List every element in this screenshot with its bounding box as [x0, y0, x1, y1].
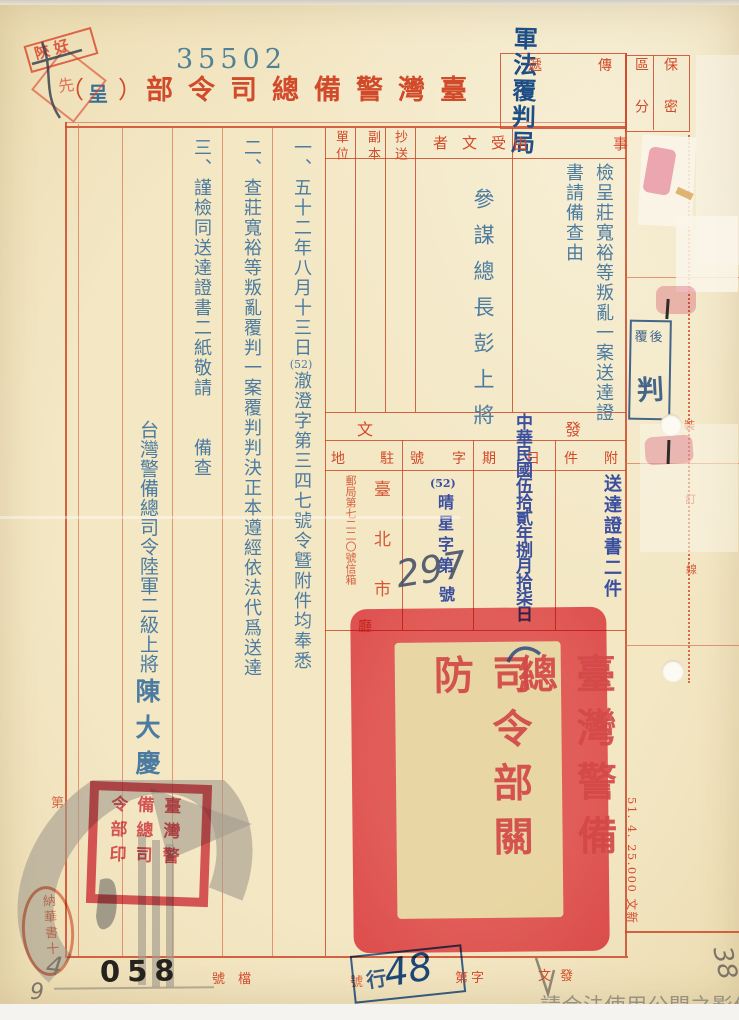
pencil-number-a: 4 [44, 951, 64, 983]
body-column-2: 二、查莊寬裕等叛亂覆判一案覆判判決正本遵經依法代爲送達 [238, 138, 264, 738]
handwritten-number: 48 [381, 944, 436, 996]
issue-bottom-label: 文發 [538, 965, 582, 984]
attachment-value: 送達證書二件 [598, 474, 624, 600]
punch-hole-top [660, 414, 682, 436]
recipient-header: 者文受 [433, 132, 520, 153]
classification-label: 區分 [631, 57, 651, 141]
number-year: (52) [430, 477, 456, 490]
year-inline: (52) [290, 358, 313, 371]
subject-line1: 檢呈莊寬裕等叛亂一案送達證 [590, 163, 616, 423]
copy-to-header: 抄送 [390, 130, 409, 164]
subject-line2: 書請備查由 [560, 163, 586, 263]
pencil-number-b: 9 [30, 980, 44, 1005]
scanned-document: 35502 （ 呈 ） 部令司總備警灣臺 陝好 先 軍法覆判局 遞傳 保密 區分… [0, 0, 739, 1020]
signer-name: 陳大慶 [128, 678, 164, 786]
attachment-label: 件附 [564, 448, 644, 468]
date-value: 中華民國伍拾貳年捌月拾柒日 [510, 413, 535, 621]
file-number-label: 號檔 [212, 968, 264, 987]
signer-title: 台灣警備總司令陸軍二級上將 [135, 420, 162, 674]
scan-edge-bottom [0, 1004, 739, 1020]
station-value: 臺北市 [368, 480, 393, 630]
print-note: 51. 4. 25.000 文新 [626, 797, 640, 909]
large-seal-left-column: 司令部關防 [421, 653, 540, 918]
pen-stroke [20, 30, 110, 130]
pencil-corner-number: 38 [706, 944, 739, 983]
station-address: 郵局第七二二〇號信箱 [342, 475, 358, 585]
org-title: 部令司總備警灣臺 [146, 68, 482, 107]
small-square-seal: 臺灣警 備總司 令部印 [86, 781, 212, 907]
duplicate-header: 副本 [363, 130, 382, 164]
large-official-seal: 臺灣警備總 司令部關防 [350, 607, 610, 954]
review-stamp: 覆後 判 [628, 320, 672, 421]
station-label: 地駐 [331, 448, 429, 468]
pen-mark-on-seal [500, 636, 550, 670]
body-column-1: 一、五十二年八月十三日(52)澈澄字第三四七號令曁附件均奉悉 [288, 138, 314, 698]
punch-hole-bottom [662, 660, 684, 682]
unit-header: 單位 [331, 130, 350, 164]
scan-edge-top [0, 0, 739, 5]
body-column-3: 三、謹檢同送達證書二紙敬請 備查 [188, 138, 214, 698]
paper-crease [0, 516, 460, 519]
security-label: 保密 [660, 57, 680, 141]
file-number-stamp: 058 [100, 953, 182, 988]
title-paren-close: ） [118, 70, 142, 105]
recipient-value: 參謀總長彭上將 [468, 188, 498, 440]
binding-char-3: 線 [686, 561, 697, 577]
doc-number-prefix-label: 第字 [455, 967, 487, 986]
